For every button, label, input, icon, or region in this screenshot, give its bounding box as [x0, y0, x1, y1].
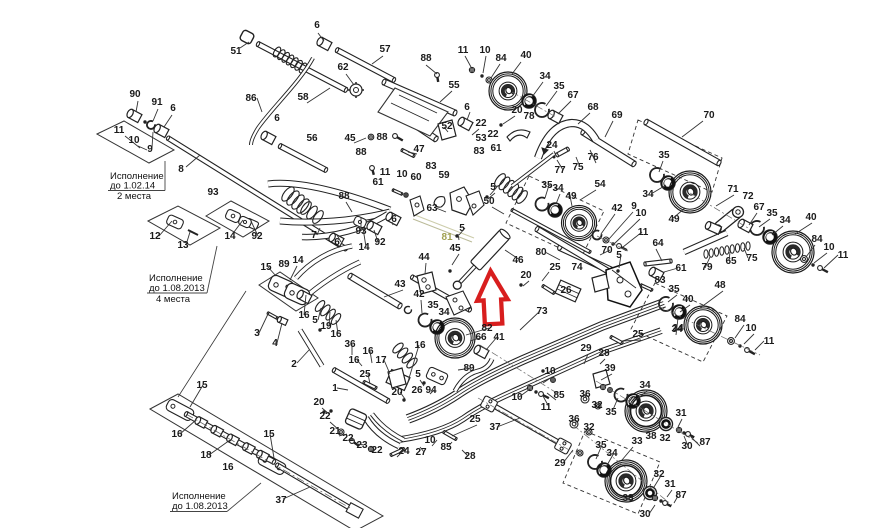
svg-text:40: 40	[682, 294, 694, 305]
svg-text:88: 88	[338, 191, 350, 202]
svg-text:89: 89	[278, 259, 290, 270]
svg-text:34: 34	[639, 380, 651, 391]
svg-text:35: 35	[766, 208, 778, 219]
svg-text:11: 11	[764, 336, 775, 347]
svg-text:45: 45	[449, 243, 461, 254]
svg-text:6: 6	[314, 20, 320, 31]
svg-text:22: 22	[475, 118, 487, 129]
svg-text:38: 38	[645, 431, 657, 442]
svg-text:20: 20	[391, 387, 403, 398]
svg-text:37: 37	[489, 422, 501, 433]
svg-text:88: 88	[376, 132, 388, 143]
svg-text:6: 6	[464, 102, 470, 113]
svg-text:16: 16	[362, 346, 374, 357]
svg-text:11: 11	[638, 227, 649, 238]
svg-text:11: 11	[458, 45, 469, 56]
svg-text:67: 67	[567, 90, 579, 101]
svg-text:24: 24	[546, 140, 558, 151]
svg-text:10: 10	[745, 323, 757, 334]
svg-text:30: 30	[681, 441, 693, 452]
svg-text:37: 37	[275, 495, 287, 506]
svg-text:61: 61	[372, 177, 384, 188]
svg-text:71: 71	[727, 184, 739, 195]
svg-text:28: 28	[598, 348, 610, 359]
svg-text:92: 92	[251, 231, 263, 242]
svg-text:94: 94	[425, 385, 437, 396]
svg-text:40: 40	[805, 212, 817, 223]
svg-text:72: 72	[742, 191, 754, 202]
svg-text:45: 45	[344, 133, 356, 144]
svg-text:32: 32	[583, 422, 595, 433]
svg-text:6: 6	[170, 103, 176, 114]
svg-text:65: 65	[725, 256, 737, 267]
svg-text:31: 31	[675, 408, 687, 419]
svg-text:11: 11	[838, 250, 849, 261]
svg-text:32: 32	[659, 433, 671, 444]
svg-text:12: 12	[149, 231, 161, 242]
svg-text:75: 75	[746, 253, 758, 264]
svg-text:48: 48	[714, 280, 726, 291]
svg-text:34: 34	[779, 215, 791, 226]
svg-text:16: 16	[348, 355, 360, 366]
svg-text:84: 84	[734, 314, 746, 325]
svg-text:53: 53	[475, 133, 487, 144]
svg-text:34: 34	[438, 307, 450, 318]
svg-text:16: 16	[222, 462, 234, 473]
svg-text:14: 14	[292, 255, 304, 266]
svg-text:88: 88	[420, 53, 432, 64]
svg-text:61: 61	[490, 143, 502, 154]
svg-text:36: 36	[579, 389, 591, 400]
svg-text:42: 42	[413, 289, 425, 300]
svg-text:28: 28	[464, 451, 476, 462]
svg-text:91: 91	[151, 97, 163, 108]
svg-text:36: 36	[344, 339, 356, 350]
svg-text:10: 10	[635, 208, 647, 219]
svg-text:86: 86	[245, 93, 257, 104]
svg-text:15: 15	[260, 262, 272, 273]
svg-text:35: 35	[658, 150, 670, 161]
svg-text:5: 5	[312, 315, 318, 326]
svg-text:3: 3	[254, 328, 260, 339]
svg-text:44: 44	[418, 252, 430, 263]
svg-text:81: 81	[441, 232, 453, 243]
svg-text:43: 43	[394, 279, 406, 290]
svg-text:68: 68	[587, 102, 599, 113]
svg-text:64: 64	[652, 238, 664, 249]
svg-text:34: 34	[642, 189, 654, 200]
svg-text:21: 21	[329, 426, 341, 437]
svg-text:84: 84	[495, 53, 507, 64]
svg-text:90: 90	[129, 89, 141, 100]
svg-text:22: 22	[487, 129, 499, 140]
svg-text:25: 25	[632, 329, 644, 340]
svg-text:29: 29	[554, 458, 566, 469]
svg-text:70: 70	[601, 245, 613, 256]
svg-text:17: 17	[375, 355, 387, 366]
svg-text:23: 23	[356, 440, 368, 451]
svg-text:56: 56	[306, 133, 318, 144]
svg-text:29: 29	[580, 343, 592, 354]
svg-text:58: 58	[297, 92, 309, 103]
svg-text:78: 78	[523, 111, 535, 122]
svg-text:88: 88	[355, 147, 367, 158]
svg-text:49: 49	[668, 214, 680, 225]
svg-text:34: 34	[539, 71, 551, 82]
svg-text:35: 35	[668, 284, 680, 295]
svg-text:67: 67	[753, 202, 765, 213]
svg-text:30: 30	[639, 509, 651, 520]
svg-text:83: 83	[425, 161, 437, 172]
svg-text:20: 20	[520, 270, 532, 281]
svg-text:10: 10	[511, 392, 523, 403]
svg-text:73: 73	[536, 306, 548, 317]
svg-text:7: 7	[311, 230, 317, 241]
svg-text:35: 35	[553, 81, 565, 92]
svg-text:59: 59	[438, 170, 450, 181]
svg-text:34: 34	[552, 183, 564, 194]
svg-text:36: 36	[568, 414, 580, 425]
svg-text:11: 11	[114, 125, 125, 136]
svg-text:16: 16	[330, 329, 342, 340]
svg-text:83: 83	[654, 275, 666, 286]
svg-text:55: 55	[448, 80, 460, 91]
svg-text:10: 10	[823, 242, 835, 253]
svg-text:10: 10	[424, 435, 436, 446]
svg-text:16: 16	[414, 340, 426, 351]
svg-text:15: 15	[263, 429, 275, 440]
svg-text:до 1.08.2013: до 1.08.2013	[172, 501, 228, 512]
svg-text:18: 18	[200, 450, 212, 461]
svg-text:20: 20	[313, 397, 325, 408]
svg-text:41: 41	[493, 332, 505, 343]
svg-text:38: 38	[622, 493, 634, 504]
svg-text:54: 54	[594, 179, 606, 190]
svg-text:26: 26	[411, 385, 423, 396]
svg-text:14: 14	[358, 242, 370, 253]
svg-text:10: 10	[479, 45, 491, 56]
svg-text:26: 26	[560, 285, 572, 296]
svg-text:35: 35	[595, 440, 607, 451]
svg-text:32: 32	[591, 400, 603, 411]
svg-text:83: 83	[473, 146, 485, 157]
svg-text:77: 77	[554, 165, 566, 176]
svg-text:57: 57	[379, 44, 391, 55]
svg-text:5: 5	[415, 369, 421, 380]
svg-text:24: 24	[398, 446, 410, 457]
svg-text:35: 35	[605, 407, 617, 418]
svg-text:20: 20	[511, 105, 523, 116]
svg-text:4 места: 4 места	[156, 294, 191, 305]
svg-text:39: 39	[604, 363, 616, 374]
svg-text:10: 10	[544, 366, 556, 377]
svg-text:34: 34	[606, 448, 618, 459]
svg-text:69: 69	[611, 110, 623, 121]
svg-text:70: 70	[703, 110, 715, 121]
svg-text:2: 2	[291, 359, 297, 370]
svg-text:42: 42	[611, 203, 623, 214]
svg-text:84: 84	[811, 234, 823, 245]
svg-text:6: 6	[274, 113, 280, 124]
svg-text:8: 8	[178, 164, 184, 175]
svg-text:22: 22	[319, 411, 331, 422]
svg-text:87: 87	[675, 490, 687, 501]
svg-text:93: 93	[207, 187, 219, 198]
svg-text:87: 87	[699, 437, 711, 448]
svg-text:62: 62	[337, 62, 349, 73]
svg-text:11: 11	[541, 402, 552, 413]
svg-text:33: 33	[631, 436, 643, 447]
svg-text:40: 40	[520, 50, 532, 61]
svg-text:92: 92	[374, 237, 386, 248]
svg-text:4: 4	[272, 338, 278, 349]
svg-text:16: 16	[171, 429, 183, 440]
svg-text:74: 74	[571, 262, 583, 273]
svg-text:31: 31	[664, 479, 676, 490]
svg-text:35: 35	[427, 300, 439, 311]
svg-text:60: 60	[410, 172, 422, 183]
svg-text:25: 25	[469, 414, 481, 425]
svg-text:2 места: 2 места	[117, 191, 152, 202]
svg-text:до 1.02.14: до 1.02.14	[110, 181, 155, 192]
svg-text:до 1.08.2013: до 1.08.2013	[149, 283, 205, 294]
svg-text:25: 25	[549, 262, 561, 273]
svg-text:14: 14	[224, 231, 236, 242]
svg-text:10: 10	[396, 169, 408, 180]
